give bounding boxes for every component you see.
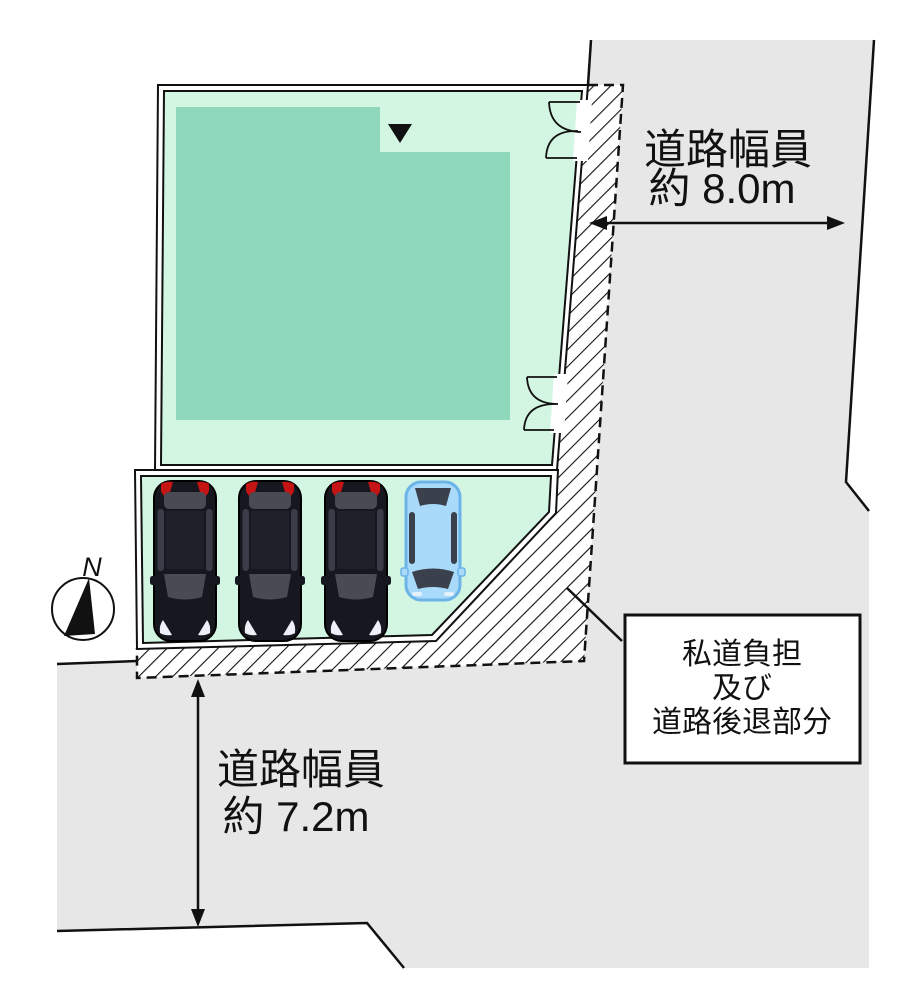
road-width-right-value: 約 8.0m — [648, 165, 795, 212]
compass-north-label: N — [82, 552, 102, 582]
building-footprint — [176, 107, 510, 420]
setback-label-line3: 道路後退部分 — [652, 706, 832, 739]
road-width-bottom-text: 道路幅員 — [217, 746, 385, 793]
setback-label-line1: 私道負担 — [682, 638, 802, 671]
car-blue — [401, 482, 465, 600]
site-plan-page: N 道路幅員 約 8.0m 道路幅員 約 7.2m 私道負担 及び 道路後退部分 — [0, 0, 909, 995]
car-dark-3 — [321, 481, 391, 641]
site-plan-canvas: N 道路幅員 約 8.0m 道路幅員 約 7.2m 私道負担 及び 道路後退部分 — [0, 0, 909, 995]
road-width-bottom-value: 約 7.2m — [222, 793, 369, 840]
car-dark-1 — [150, 481, 220, 641]
compass: N — [52, 552, 114, 640]
setback-label-line2: 及び — [712, 672, 772, 705]
car-dark-2 — [235, 481, 305, 641]
